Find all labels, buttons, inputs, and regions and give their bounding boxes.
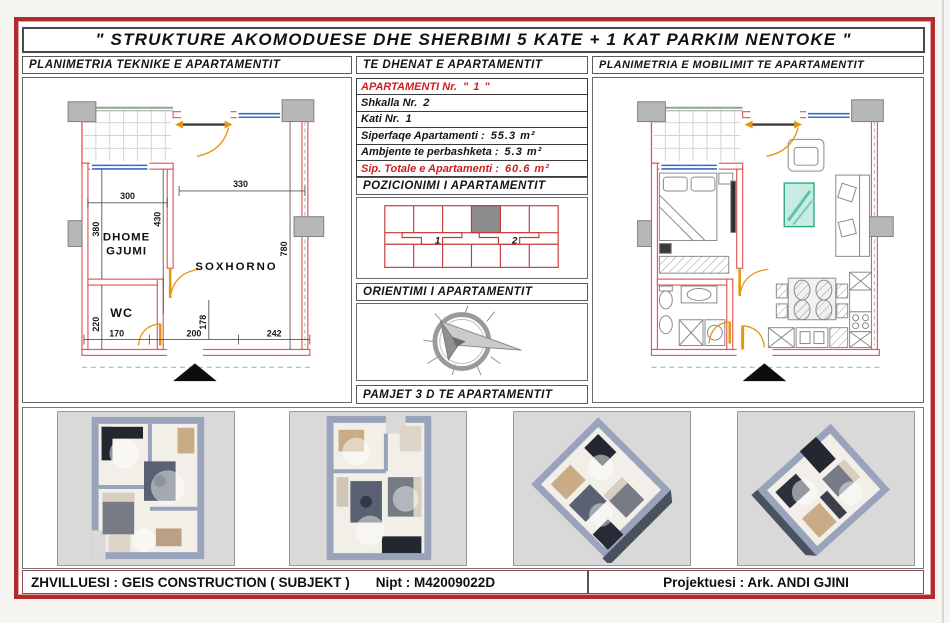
svg-text:GJUMI: GJUMI — [106, 245, 147, 257]
svg-text:430: 430 — [152, 212, 162, 227]
svg-text:170: 170 — [109, 329, 124, 339]
row-label: Kati Nr. — [361, 113, 400, 125]
entrance-arrow-icon — [743, 363, 787, 381]
svg-text:242: 242 — [267, 329, 282, 339]
row-value: 2 — [423, 97, 430, 109]
view-3d-iso-1 — [513, 411, 691, 566]
view-3d-iso-2 — [737, 411, 915, 566]
row-value: " 1 " — [463, 81, 491, 93]
table-row: APARTAMENTI Nr." 1 " — [356, 78, 588, 95]
header-orientation: ORIENTIMI I APARTAMENTIT — [356, 283, 588, 301]
furniture — [659, 139, 871, 347]
balcony-tile-grid — [84, 110, 171, 162]
header-technical-plan: PLANIMETRIA TEKNIKE E APARTAMENTIT — [22, 56, 352, 74]
header-3d-views: PAMJET 3 D TE APARTAMENTIT — [356, 385, 588, 404]
building-position-diagram: 1 2 — [357, 198, 586, 277]
row-label: APARTAMENTI Nr. — [361, 81, 457, 93]
table-row: Shkalla Nr.2 — [356, 94, 588, 111]
positioning-panel: 1 2 — [356, 197, 588, 279]
wardrobe — [659, 256, 728, 273]
bedroom-unit — [659, 243, 671, 253]
row-label: Siperfaqe Apartamenti : — [361, 130, 485, 142]
bidet — [659, 316, 672, 334]
door-opening — [751, 111, 801, 119]
furnished-floor-plan — [593, 78, 922, 401]
row-value: 1 — [406, 113, 413, 125]
room-labels: DHOME GJUMI SOXHORNO WC — [103, 231, 278, 319]
entry-opening-bottom — [167, 348, 203, 356]
apartment-position-highlight — [472, 206, 501, 233]
row-label: Sip. Totale e Apartamenti : — [361, 163, 499, 175]
compass-icon — [357, 304, 586, 379]
entrance-arrow-icon — [173, 363, 217, 381]
sheet-title: " STRUKTURE AKOMODUESE DHE SHERBIMI 5 KA… — [22, 27, 925, 53]
stove — [850, 312, 872, 332]
views-3d-strip — [22, 407, 924, 569]
svg-text:780: 780 — [279, 241, 289, 256]
developer-cell: ZHVILLUESI : GEIS CONSTRUCTION ( SUBJEKT… — [23, 571, 589, 593]
designer-text: Projektuesi : Ark. ANDI GJINI — [663, 575, 849, 590]
header-apartment-data: TE DHENAT E APARTAMENTIT — [356, 56, 588, 74]
toilet — [659, 286, 672, 291]
svg-text:200: 200 — [187, 329, 202, 339]
view-3d-top-2 — [289, 411, 467, 566]
row-label: Shkalla Nr. — [361, 97, 417, 109]
row-value: 5.3 m² — [505, 146, 543, 158]
windows — [92, 114, 280, 169]
furnishing-plan-panel — [592, 77, 924, 403]
svg-text:380: 380 — [91, 222, 101, 237]
svg-text:DHOME: DHOME — [103, 231, 150, 243]
svg-text:220: 220 — [91, 317, 101, 332]
svg-text:178: 178 — [198, 315, 208, 330]
table-row: Sip. Totale e Apartamenti :60.6 m² — [356, 160, 588, 177]
header-positioning: POZICIONIMI I APARTAMENTIT — [356, 177, 588, 195]
developer-text: ZHVILLUESI : GEIS CONSTRUCTION ( SUBJEKT… — [31, 575, 350, 590]
row-label: Ambjente te perbashketa : — [361, 146, 499, 158]
tv-panel — [731, 181, 736, 233]
table-row: Siperfaqe Apartamenti :55.3 m² — [356, 127, 588, 144]
orientation-panel — [356, 303, 588, 381]
svg-text:330: 330 — [233, 179, 248, 189]
technical-floor-plan: 330 300 380 430 780 220 178 170 200 242 … — [23, 78, 353, 401]
stair-1-label: 1 — [435, 235, 440, 246]
view-3d-top-1 — [57, 411, 235, 566]
table-row: Kati Nr.1 — [356, 111, 588, 128]
technical-plan-panel: 330 300 380 430 780 220 178 170 200 242 … — [22, 77, 352, 403]
svg-text:SOXHORNO: SOXHORNO — [195, 261, 277, 273]
svg-text:300: 300 — [120, 191, 135, 201]
title-block: ZHVILLUESI : GEIS CONSTRUCTION ( SUBJEKT… — [22, 570, 924, 594]
entry-opening-bottom — [737, 348, 773, 356]
table-row: Ambjente te perbashketa :5.3 m² — [356, 144, 588, 161]
svg-text:WC: WC — [110, 306, 133, 320]
balcony-tile-grid — [653, 110, 740, 162]
paper-edge — [942, 0, 944, 623]
row-value: 55.3 m² — [491, 130, 536, 142]
apartment-data-table: APARTAMENTI Nr." 1 " Shkalla Nr.2 Kati N… — [356, 79, 588, 177]
row-value: 60.6 m² — [505, 163, 550, 175]
structural-columns — [68, 100, 324, 247]
door-opening — [181, 111, 231, 119]
stair-2-label: 2 — [511, 235, 518, 246]
sofa-back — [860, 175, 870, 256]
entry-door — [175, 121, 232, 157]
drawing-sheet: " STRUKTURE AKOMODUESE DHE SHERBIMI 5 KA… — [14, 17, 935, 599]
designer-cell: Projektuesi : Ark. ANDI GJINI — [589, 571, 923, 593]
nipt-text: Nipt : M42009022D — [376, 575, 495, 590]
header-furnishing-plan: PLANIMETRIA E MOBILIMIT TE APARTAMENTIT — [592, 56, 924, 74]
